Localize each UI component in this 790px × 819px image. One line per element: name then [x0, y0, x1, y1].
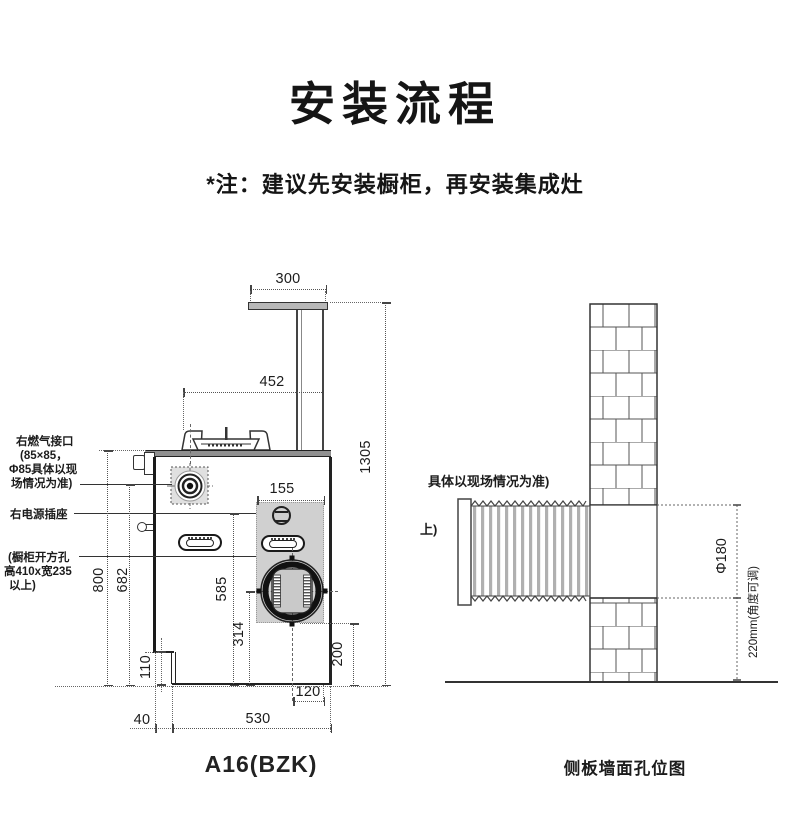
- power-socket-icon: [272, 506, 291, 525]
- side-pin-cap: [137, 522, 147, 532]
- body-vent-slots: [188, 537, 212, 539]
- dim-530-line: [172, 728, 331, 729]
- dim-314-line: [249, 591, 250, 686]
- dim-585: 585: [214, 572, 230, 606]
- hood-shelf: [248, 302, 328, 310]
- chimney-inner-line: [301, 310, 302, 451]
- body-front-edge: [153, 457, 156, 653]
- socket-chord-bottom: [275, 520, 288, 522]
- site-note-line1: 具体以现场情况为准): [428, 474, 549, 489]
- installation-diagram-page: 安装流程 *注：建议先安装橱柜，再安装集成灶 300 1305 452: [0, 0, 790, 819]
- gas-label-4: 场情况为准): [11, 475, 72, 491]
- socket-chord-top: [275, 511, 288, 513]
- dim-300-line: [250, 289, 326, 290]
- dim-120-line: [293, 701, 324, 702]
- page-title: 安装流程: [0, 68, 790, 134]
- panel-vent-inner: [269, 540, 297, 548]
- floor-line-left: [55, 686, 388, 687]
- dim-530-ext: [330, 686, 331, 732]
- dim-120-ext: [323, 685, 324, 701]
- page-note: *注：建议先安装橱柜，再安装集成灶: [0, 167, 790, 199]
- dim-800-line: [107, 450, 108, 686]
- dim-530: 530: [237, 711, 279, 727]
- flexible-duct: [458, 499, 590, 605]
- hole-diameter-label: Φ180: [714, 538, 730, 574]
- dim-200-connector: [300, 623, 353, 624]
- dim-1305-line: [385, 302, 386, 686]
- dim-200: 200: [330, 637, 346, 671]
- dim-800: 800: [91, 563, 107, 597]
- duct-length-label: 220mm(角度可调): [746, 566, 760, 658]
- model-caption: A16(BZK): [196, 751, 326, 778]
- wall-hole-diagram: 具体以现场情况为准) 上) Φ180 220mm(角度可调): [415, 295, 790, 700]
- body-vent-inner: [186, 539, 214, 547]
- dim-300: 300: [264, 271, 312, 287]
- wall-diagram-caption: 侧板墙面孔位图: [540, 755, 710, 779]
- socket-leader-line: [74, 513, 271, 514]
- dim-452-line: [183, 392, 322, 393]
- dim-155: 155: [262, 481, 302, 497]
- socket-label: 右电源插座: [10, 506, 68, 522]
- dim-40: 40: [128, 712, 156, 728]
- gas-connector-icon: [167, 463, 213, 509]
- exhaust-outlet-icon: [252, 550, 332, 632]
- gas-centerline: [190, 424, 191, 464]
- countertop: [145, 450, 331, 457]
- plinth-front-edge: [171, 652, 176, 684]
- dim-585-line: [233, 513, 234, 686]
- brick-wall: [590, 304, 657, 682]
- site-note-line2: 上): [420, 522, 437, 537]
- dim-110: 110: [138, 650, 154, 684]
- dim-682: 682: [115, 563, 131, 597]
- dim-452: 452: [250, 374, 294, 390]
- cabinet-label-3: 以上): [9, 577, 36, 593]
- dim-314: 314: [231, 617, 247, 651]
- dim-155-line: [257, 500, 324, 501]
- dim-200-line: [353, 623, 354, 686]
- dim-40-ext-left: [155, 653, 156, 732]
- dim-1305: 1305: [358, 435, 374, 479]
- panel-vent-slots: [271, 538, 295, 540]
- dim-1305-connector: [330, 302, 385, 303]
